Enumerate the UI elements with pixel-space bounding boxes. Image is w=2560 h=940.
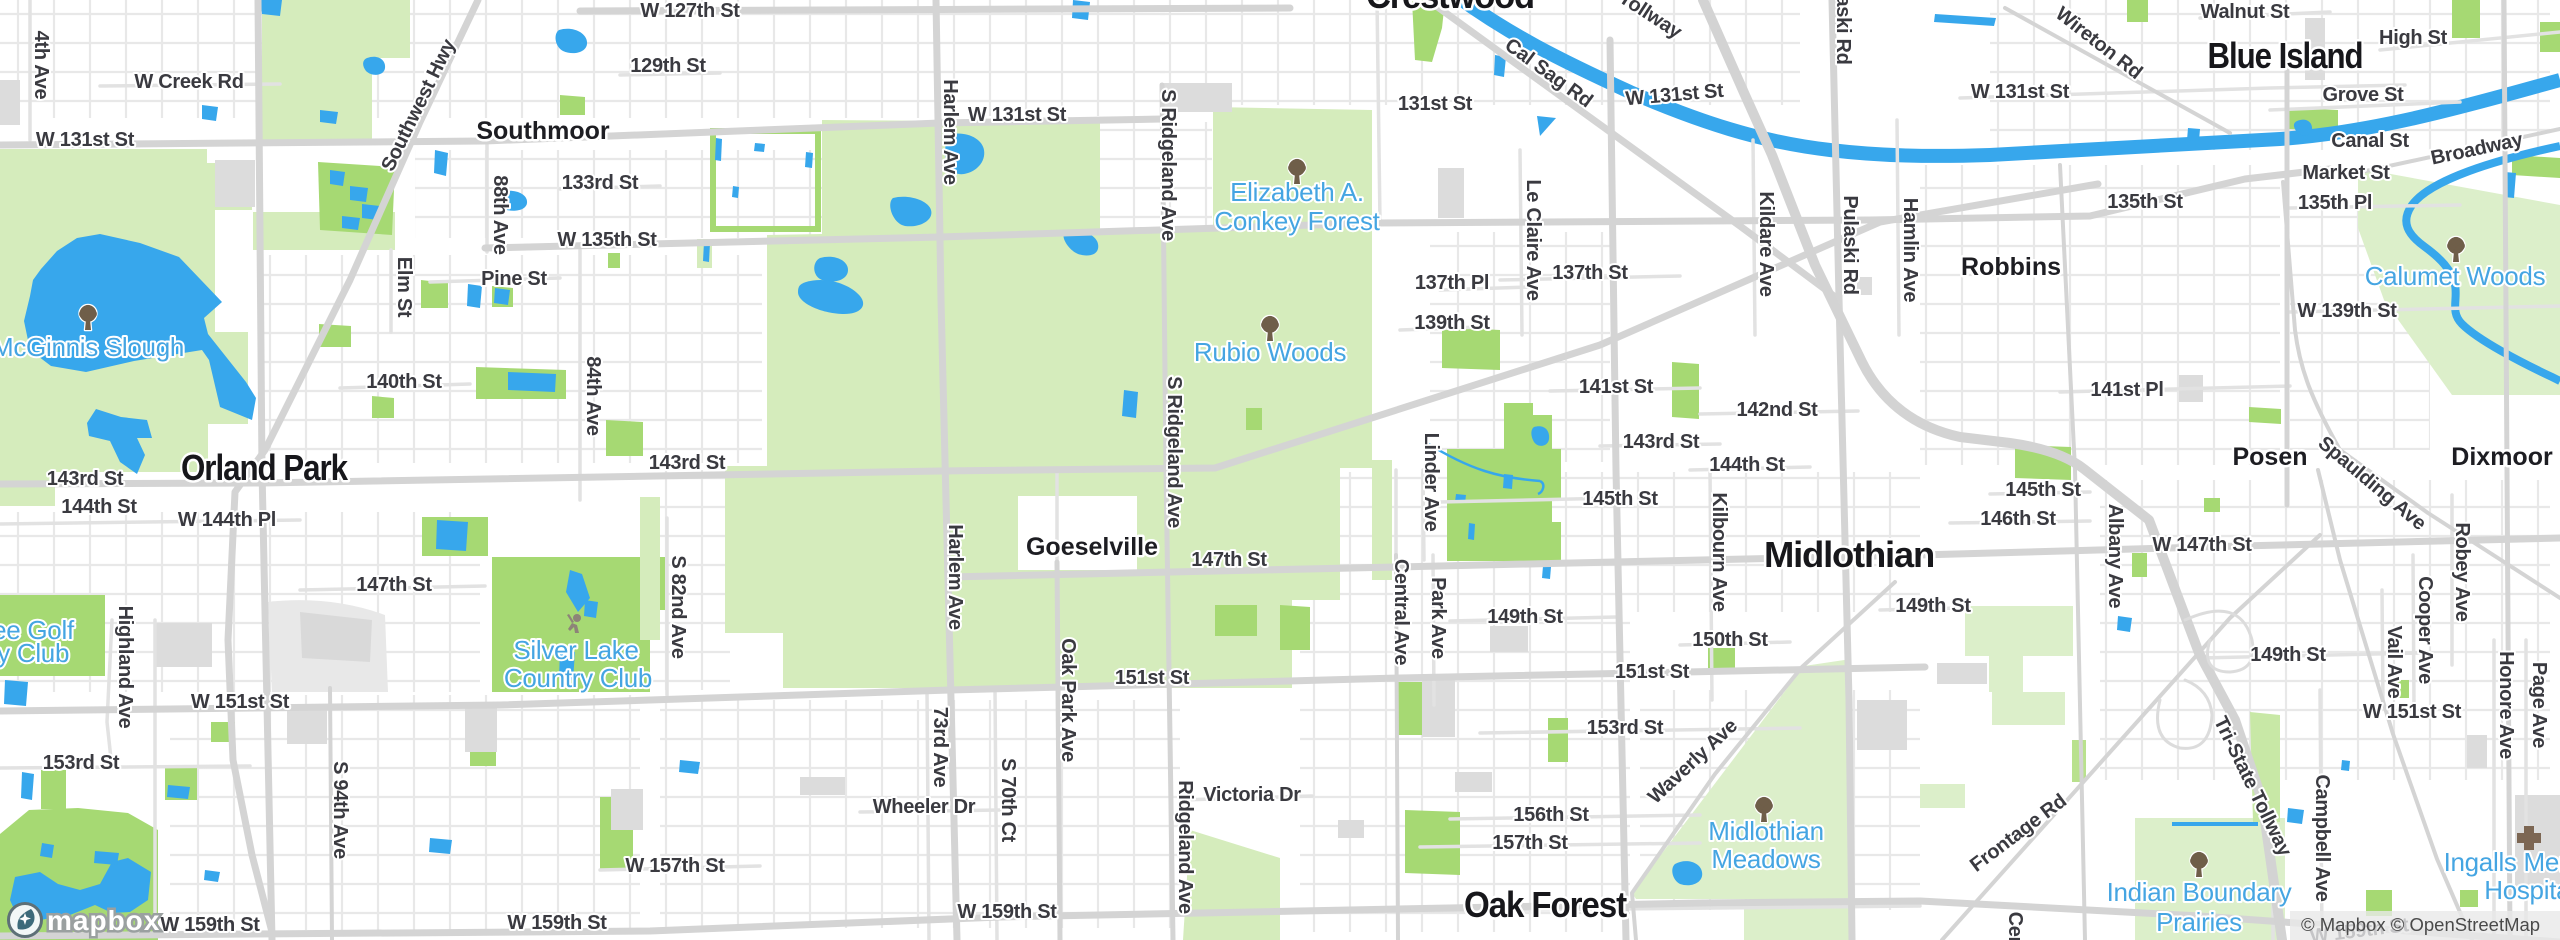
svg-text:W 135th St: W 135th St	[557, 229, 657, 251]
svg-text:Wheeler Dr: Wheeler Dr	[873, 796, 976, 818]
svg-text:aski Rd: aski Rd	[1832, 0, 1854, 65]
svg-text:Ingalls Mem: Ingalls Mem	[2444, 847, 2560, 877]
svg-text:Posen: Posen	[2232, 443, 2307, 471]
svg-text:Kildare Ave: Kildare Ave	[1755, 191, 1777, 296]
svg-text:137th Pl: 137th Pl	[1415, 272, 1489, 294]
svg-text:88th Ave: 88th Ave	[489, 175, 511, 255]
svg-text:Linder Ave: Linder Ave	[1420, 433, 1442, 532]
svg-text:Albany Ave: Albany Ave	[2104, 504, 2126, 609]
svg-text:135th Pl: 135th Pl	[2298, 192, 2372, 214]
svg-text:143rd St: 143rd St	[47, 468, 124, 490]
svg-text:ry Club: ry Club	[0, 638, 69, 668]
svg-text:139th St: 139th St	[1414, 312, 1490, 334]
svg-text:147th St: 147th St	[1191, 549, 1267, 571]
svg-text:Silver Lake: Silver Lake	[513, 635, 638, 665]
svg-text:W 159th St: W 159th St	[957, 901, 1057, 923]
svg-text:145th St: 145th St	[1582, 488, 1658, 510]
svg-text:S 94th Ave: S 94th Ave	[329, 761, 351, 859]
svg-text:142nd St: 142nd St	[1737, 399, 1819, 421]
svg-text:129th St: 129th St	[630, 55, 706, 77]
svg-text:Meadows: Meadows	[1711, 844, 1820, 874]
svg-text:Country Club: Country Club	[504, 663, 652, 693]
svg-text:Hamlin Ave: Hamlin Ave	[1899, 198, 1921, 303]
svg-text:145th St: 145th St	[2005, 479, 2081, 501]
svg-text:73rd Ave: 73rd Ave	[929, 707, 951, 788]
svg-text:157th St: 157th St	[1492, 832, 1568, 854]
svg-text:Southmoor: Southmoor	[476, 117, 610, 145]
svg-text:153rd St: 153rd St	[43, 752, 120, 774]
svg-text:W 144th Pl: W 144th Pl	[178, 509, 276, 531]
svg-text:Robbins: Robbins	[1961, 253, 2061, 281]
svg-text:147th St: 147th St	[356, 574, 432, 596]
svg-text:Kilbourn Ave: Kilbourn Ave	[1708, 492, 1730, 612]
svg-text:Central Ave: Central Ave	[1390, 559, 1412, 666]
svg-text:Dixmoor: Dixmoor	[2451, 443, 2553, 471]
svg-text:Cen: Cen	[2004, 912, 2026, 940]
svg-text:W 131st St: W 131st St	[36, 129, 135, 151]
svg-text:Walnut St: Walnut St	[2201, 1, 2290, 23]
svg-text:High St: High St	[2379, 27, 2448, 49]
svg-text:Harlem Ave: Harlem Ave	[939, 79, 961, 185]
svg-text:© Mapbox © OpenStreetMap: © Mapbox © OpenStreetMap	[2301, 914, 2540, 935]
svg-text:137th St: 137th St	[1552, 262, 1628, 284]
svg-text:S 82nd Ave: S 82nd Ave	[667, 555, 689, 659]
svg-text:151st St: 151st St	[1615, 661, 1690, 683]
svg-text:84th Ave: 84th Ave	[582, 356, 604, 436]
svg-text:Oak Park Ave: Oak Park Ave	[1057, 638, 1079, 762]
svg-text:131st St: 131st St	[1398, 93, 1473, 115]
svg-text:Calumet Woods: Calumet Woods	[2365, 261, 2546, 291]
svg-text:150th St: 150th St	[1692, 629, 1768, 651]
svg-text:Park Ave: Park Ave	[1427, 577, 1449, 659]
svg-text:Indian Boundary: Indian Boundary	[2107, 877, 2292, 907]
svg-text:4th Ave: 4th Ave	[30, 31, 52, 100]
svg-text:Hospital: Hospital	[2484, 875, 2560, 905]
svg-text:143rd St: 143rd St	[1623, 431, 1700, 453]
svg-text:W 127th St: W 127th St	[640, 0, 740, 22]
svg-text:Oak Forest: Oak Forest	[1464, 884, 1627, 925]
svg-text:146th St: 146th St	[1980, 508, 2056, 530]
svg-text:Cooper Ave: Cooper Ave	[2414, 576, 2436, 684]
svg-text:141st Pl: 141st Pl	[2090, 379, 2163, 401]
svg-text:Victoria Dr: Victoria Dr	[1203, 784, 1301, 806]
svg-text:Pulaski Rd: Pulaski Rd	[1839, 195, 1861, 294]
svg-text:Crestwood: Crestwood	[1366, 0, 1534, 16]
svg-text:Pine St: Pine St	[481, 268, 547, 290]
svg-text:144th St: 144th St	[1709, 454, 1785, 476]
svg-text:Harlem Ave: Harlem Ave	[944, 524, 966, 630]
svg-text:Campbell Ave: Campbell Ave	[2311, 774, 2333, 901]
svg-text:151st St: 151st St	[1115, 667, 1190, 689]
svg-text:Canal St: Canal St	[2331, 130, 2409, 152]
svg-text:156th St: 156th St	[1513, 804, 1589, 826]
svg-text:Market St: Market St	[2302, 162, 2390, 184]
svg-text:Goeselville: Goeselville	[1026, 533, 1158, 561]
svg-text:W 147th St: W 147th St	[2152, 534, 2252, 556]
svg-text:S Ridgeland Ave: S Ridgeland Ave	[1163, 376, 1185, 528]
svg-text:W 151st St: W 151st St	[2363, 701, 2462, 723]
svg-text:McGinnis Slough: McGinnis Slough	[0, 332, 184, 362]
svg-text:Ridgeland Ave: Ridgeland Ave	[1174, 780, 1196, 914]
svg-text:149th St: 149th St	[1895, 595, 1971, 617]
svg-text:143rd St: 143rd St	[649, 452, 726, 474]
svg-text:149th St: 149th St	[1487, 606, 1563, 628]
svg-text:Grove St: Grove St	[2323, 84, 2405, 106]
svg-text:Honore Ave: Honore Ave	[2495, 651, 2517, 759]
svg-text:Elm St: Elm St	[393, 257, 415, 318]
svg-text:135th St: 135th St	[2107, 191, 2183, 213]
svg-text:Highland Ave: Highland Ave	[114, 606, 136, 729]
svg-text:Prairies: Prairies	[2156, 907, 2242, 937]
svg-text:W 151st St: W 151st St	[191, 691, 290, 713]
svg-text:S 70th Ct: S 70th Ct	[997, 758, 1019, 843]
svg-text:Orland Park: Orland Park	[181, 447, 349, 488]
svg-text:W 157th St: W 157th St	[625, 855, 725, 877]
svg-text:Conkey Forest: Conkey Forest	[1214, 206, 1380, 236]
svg-text:Robey Ave: Robey Ave	[2451, 522, 2473, 621]
svg-text:140th St: 140th St	[366, 371, 442, 393]
svg-text:W 131st St: W 131st St	[1971, 81, 2070, 103]
svg-text:153rd St: 153rd St	[1587, 717, 1664, 739]
svg-text:Vail Ave: Vail Ave	[2383, 626, 2405, 699]
svg-text:144th St: 144th St	[61, 496, 137, 518]
svg-text:141st St: 141st St	[1579, 376, 1654, 398]
svg-text:W 139th St: W 139th St	[2297, 300, 2397, 322]
svg-text:W 159th St: W 159th St	[160, 914, 260, 936]
svg-text:W 159th St: W 159th St	[507, 912, 607, 934]
svg-text:S Ridgeland Ave: S Ridgeland Ave	[1157, 89, 1179, 241]
svg-text:Blue Island: Blue Island	[2208, 35, 2363, 76]
svg-text:Midlothian: Midlothian	[1764, 534, 1934, 575]
svg-text:Le Claire Ave: Le Claire Ave	[1522, 179, 1544, 301]
svg-text:mapbox: mapbox	[47, 905, 160, 936]
svg-text:149th St: 149th St	[2250, 644, 2326, 666]
svg-text:W Creek Rd: W Creek Rd	[134, 71, 243, 93]
svg-text:133rd St: 133rd St	[562, 172, 639, 194]
svg-text:W 131st St: W 131st St	[968, 104, 1067, 126]
svg-text:Page Ave: Page Ave	[2528, 662, 2550, 748]
